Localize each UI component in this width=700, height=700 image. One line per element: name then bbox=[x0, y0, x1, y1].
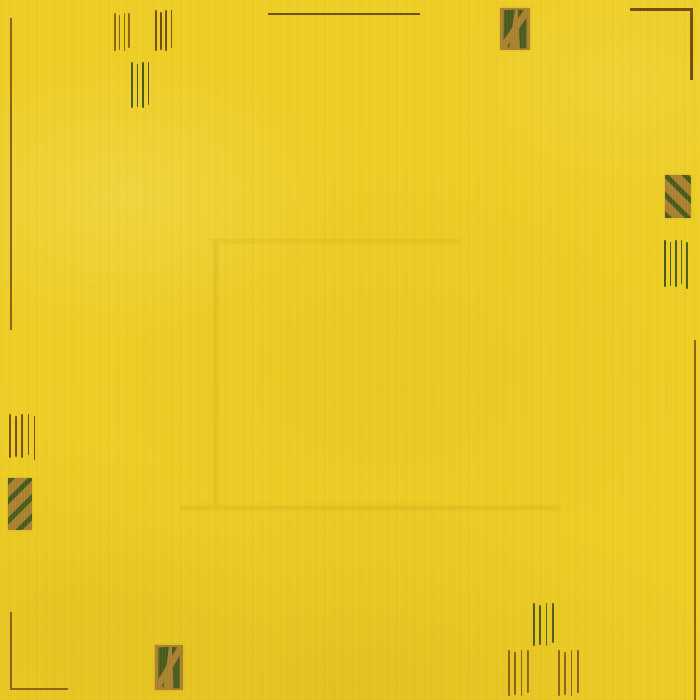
left-line-group-stripe bbox=[9, 414, 11, 458]
bottom-line-group-upper bbox=[533, 603, 559, 646]
top-left-line-group-a-stripe bbox=[119, 15, 121, 50]
top-left-line-group-c-stripe bbox=[142, 62, 144, 108]
top-left-line-group-c-stripe bbox=[131, 62, 133, 108]
right-edge-border-line bbox=[694, 340, 696, 700]
top-left-line-group-c bbox=[131, 62, 153, 108]
top-left-line-group-b bbox=[155, 10, 176, 51]
left-patch bbox=[8, 478, 32, 530]
top-border-line bbox=[268, 13, 420, 15]
right-line-group-stripe bbox=[686, 242, 688, 289]
bottom-line-group-right-stripe bbox=[558, 650, 560, 696]
fold-crease-top bbox=[210, 240, 460, 242]
bottom-center-patch bbox=[155, 645, 183, 690]
bottom-line-group-upper-stripe bbox=[546, 603, 548, 646]
bottom-line-group-right-stripe bbox=[571, 650, 573, 696]
top-left-line-group-c-stripe bbox=[148, 62, 150, 105]
left-line-group-stripe bbox=[21, 414, 23, 458]
fabric-weave-texture bbox=[0, 0, 700, 700]
fold-crease-horizontal bbox=[180, 506, 560, 509]
bottom-line-group-right-stripe bbox=[577, 650, 579, 693]
bottom-line-group-upper-stripe bbox=[552, 603, 554, 643]
top-right-corner-vline bbox=[690, 8, 693, 80]
top-left-line-group-b-stripe bbox=[165, 10, 167, 51]
bottom-left-corner-hline bbox=[10, 688, 68, 690]
bottom-line-group-left-stripe bbox=[508, 650, 510, 696]
yellow-rug-photo bbox=[0, 0, 700, 700]
bottom-line-group-upper-stripe bbox=[533, 603, 535, 646]
left-edge-border-line bbox=[10, 18, 12, 330]
bottom-line-group-left-stripe bbox=[527, 650, 529, 693]
top-left-line-group-a-stripe bbox=[124, 13, 126, 51]
top-right-corner-hline bbox=[630, 8, 692, 11]
right-line-group bbox=[664, 240, 692, 287]
left-line-group-stripe bbox=[15, 416, 17, 457]
left-line-group bbox=[9, 414, 40, 458]
fold-crease-left bbox=[214, 242, 217, 504]
right-patch bbox=[665, 175, 691, 218]
top-left-line-group-a-stripe bbox=[114, 13, 116, 51]
bottom-line-group-right bbox=[558, 650, 584, 696]
bottom-line-group-left-stripe bbox=[514, 652, 516, 695]
bottom-line-group-left bbox=[508, 650, 534, 696]
top-left-line-group-b-stripe bbox=[171, 10, 173, 48]
bottom-left-corner-vline bbox=[10, 612, 12, 690]
right-line-group-stripe bbox=[681, 240, 683, 284]
top-left-line-group-c-stripe bbox=[137, 64, 139, 107]
right-line-group-stripe bbox=[675, 240, 677, 287]
top-left-line-group-b-stripe bbox=[160, 12, 162, 50]
left-line-group-stripe bbox=[34, 416, 36, 460]
top-right-patch bbox=[500, 8, 530, 50]
top-left-line-group-a-stripe bbox=[128, 13, 130, 48]
bottom-line-group-right-stripe bbox=[564, 652, 566, 695]
right-line-group-stripe bbox=[670, 242, 672, 286]
left-line-group-stripe bbox=[28, 414, 30, 455]
right-line-group-stripe bbox=[664, 240, 666, 287]
bottom-line-group-left-stripe bbox=[521, 650, 523, 696]
top-left-line-group-b-stripe bbox=[155, 10, 157, 51]
bottom-line-group-upper-stripe bbox=[539, 605, 541, 645]
top-left-line-group-a bbox=[114, 13, 133, 51]
